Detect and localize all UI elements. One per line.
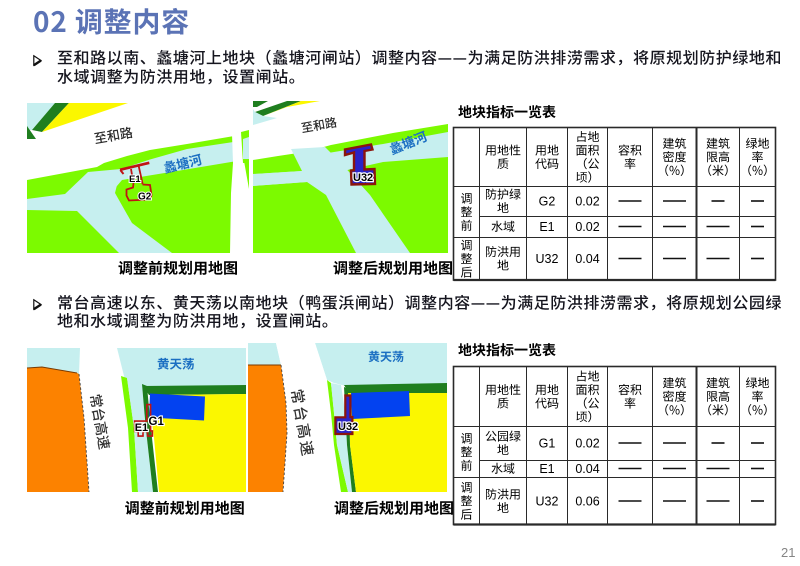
svg-text:U32: U32 [536, 252, 559, 266]
svg-text:0.02: 0.02 [575, 195, 599, 209]
svg-text:G1: G1 [539, 437, 556, 451]
svg-text:E1: E1 [129, 174, 141, 185]
svg-text:0.04: 0.04 [575, 252, 599, 266]
svg-text:E1: E1 [135, 422, 148, 434]
svg-text:0.06: 0.06 [575, 495, 599, 509]
svg-text:U32: U32 [353, 172, 373, 184]
svg-text:U32: U32 [536, 495, 559, 509]
svg-text:21: 21 [781, 545, 795, 560]
svg-text:G2: G2 [138, 191, 152, 202]
svg-text:E1: E1 [539, 220, 554, 234]
svg-text:E1: E1 [539, 462, 554, 476]
svg-text:U32: U32 [338, 421, 358, 433]
svg-text:G2: G2 [539, 195, 556, 209]
svg-text:0.04: 0.04 [575, 462, 599, 476]
svg-text:0.02: 0.02 [575, 437, 599, 451]
svg-text:G1: G1 [149, 416, 165, 428]
svg-text:0.02: 0.02 [575, 220, 599, 234]
